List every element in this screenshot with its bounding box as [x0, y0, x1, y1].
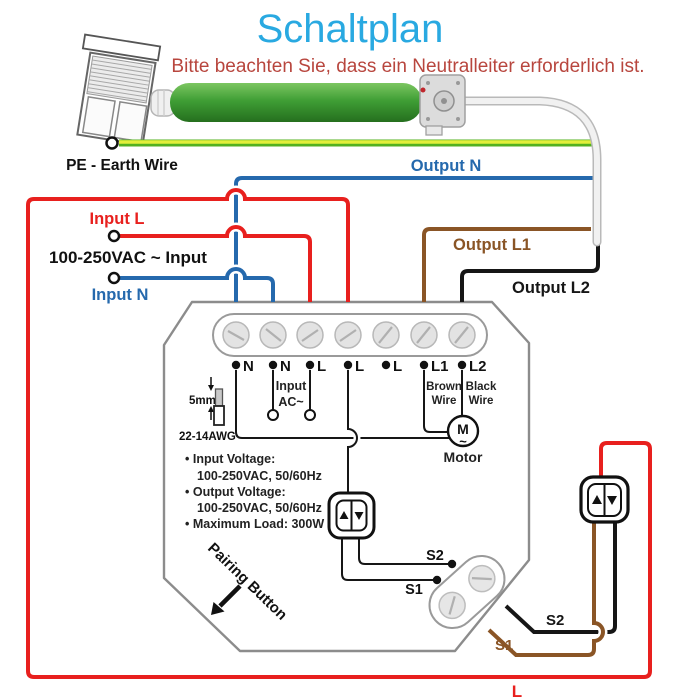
bare-wire-glyph: [216, 389, 223, 406]
spec-max-load: • Maximum Load: 300W: [185, 517, 324, 531]
input-n-label: Input N: [92, 286, 149, 304]
input-ac-terminal-l: [305, 410, 315, 420]
motor-cable: [464, 101, 597, 242]
schaltplan-page: Schaltplan Bitte beachten Sie, dass ein …: [0, 0, 700, 700]
ac-input-label: 100-250VAC ~ Input: [49, 248, 207, 267]
input-l-terminal: [109, 231, 119, 241]
terminal-label-out2: L2: [469, 358, 487, 375]
spec-output-voltage-value: 100-250VAC, 50/60Hz: [197, 501, 322, 515]
neutral-warning-text: Bitte beachten Sie, dass ein Neutralleit…: [171, 56, 644, 77]
terminal-label-l3: L: [393, 358, 402, 375]
wall-switch: [581, 477, 628, 522]
window-pane-right: [114, 102, 146, 142]
black-wire-line2: Wire: [469, 395, 494, 407]
tubular-motor: [151, 75, 465, 135]
motor-body: [170, 83, 422, 122]
motor-tilde: ~: [459, 434, 467, 449]
motor-head: [420, 75, 465, 135]
terminal-label-out1: L1: [431, 358, 449, 375]
strip-length-label: 5mm: [189, 395, 216, 407]
window-illustration: [69, 35, 160, 146]
module-s2-label: S2: [426, 548, 444, 564]
schaltplan-diagram: Schaltplan Bitte beachten Sie, dass ein …: [0, 0, 700, 700]
output-n-label: Output N: [411, 157, 482, 175]
pe-earth-wire-label: PE - Earth Wire: [66, 157, 178, 174]
input-n-terminal: [109, 273, 119, 283]
up-down-rocker-icon: [329, 493, 374, 538]
output-l1-label: Output L1: [453, 236, 531, 254]
wire-gauge-label: 22-14AWG: [179, 431, 236, 443]
motor-indicator-dot: [421, 88, 426, 93]
module-s1-label: S1: [405, 582, 423, 598]
switch-s1-label: S1: [495, 637, 513, 654]
terminal-label-n2: N: [280, 358, 291, 375]
brown-wire-line2: Wire: [432, 395, 457, 407]
black-wire-line1: Black: [466, 381, 497, 393]
window-pane-left: [83, 97, 115, 137]
input-ac-line1: Input: [276, 379, 307, 393]
terminal-label-n1: N: [243, 358, 254, 375]
terminal-label-l1: L: [317, 358, 326, 375]
earth-wire: [107, 138, 594, 149]
live-wire-label: L: [512, 682, 522, 700]
earth-terminal: [107, 138, 118, 149]
terminal-label-l2: L: [355, 358, 364, 375]
brown-wire-line1: Brown: [426, 381, 462, 393]
page-title: Schaltplan: [257, 7, 444, 51]
motor-bracket: [426, 126, 442, 135]
wire-insulation-glyph: [214, 406, 224, 425]
motor-label: Motor: [444, 449, 483, 465]
spec-input-voltage-value: 100-250VAC, 50/60Hz: [197, 469, 322, 483]
input-l-label: Input L: [90, 210, 145, 228]
input-ac-terminal-n: [268, 410, 278, 420]
spec-input-voltage: • Input Voltage:: [185, 452, 275, 466]
output-l2-label: Output L2: [512, 279, 590, 297]
spec-output-voltage: • Output Voltage:: [185, 485, 286, 499]
switch-s2-label: S2: [546, 612, 564, 629]
input-ac-line2: AC~: [278, 395, 303, 409]
